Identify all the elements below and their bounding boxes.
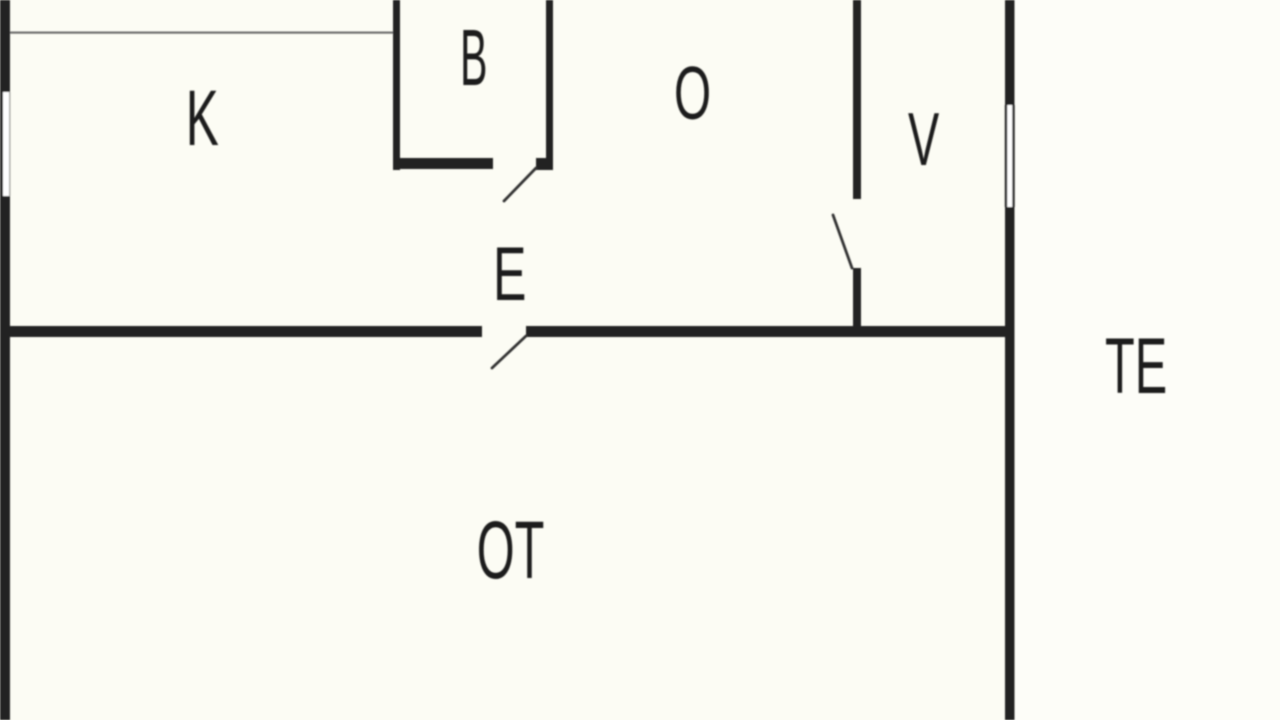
svg-text:B: B	[460, 13, 487, 102]
svg-text:TE: TE	[1105, 322, 1167, 410]
svg-text:O: O	[674, 52, 711, 136]
svg-text:V: V	[908, 98, 939, 182]
svg-text:OT: OT	[477, 505, 545, 596]
svg-text:K: K	[186, 73, 219, 162]
svg-text:E: E	[493, 232, 526, 317]
